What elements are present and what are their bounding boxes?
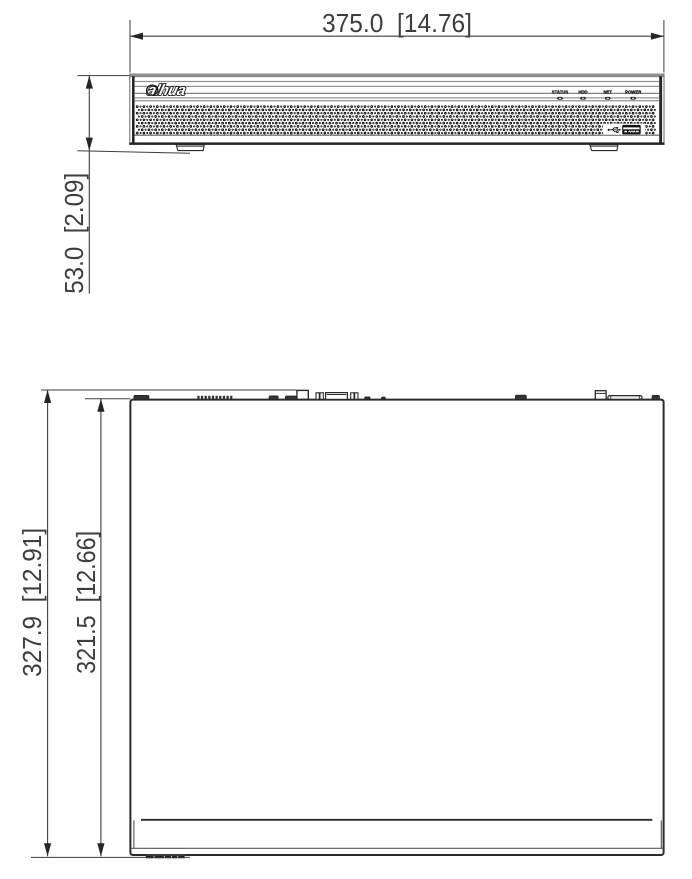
svg-text:HDD: HDD bbox=[578, 90, 587, 95]
svg-text:STATUS: STATUS bbox=[552, 90, 569, 95]
svg-text:321.5 [12.66]: 321.5 [12.66] bbox=[71, 531, 101, 674]
svg-text:327.9 [12.91]: 327.9 [12.91] bbox=[17, 528, 47, 677]
svg-text:NET: NET bbox=[603, 90, 612, 95]
svg-text:375.0 [14.76]: 375.0 [14.76] bbox=[322, 8, 472, 38]
svg-text:53.0 [2.09]: 53.0 [2.09] bbox=[59, 173, 89, 294]
svg-text:POWER: POWER bbox=[625, 90, 642, 95]
